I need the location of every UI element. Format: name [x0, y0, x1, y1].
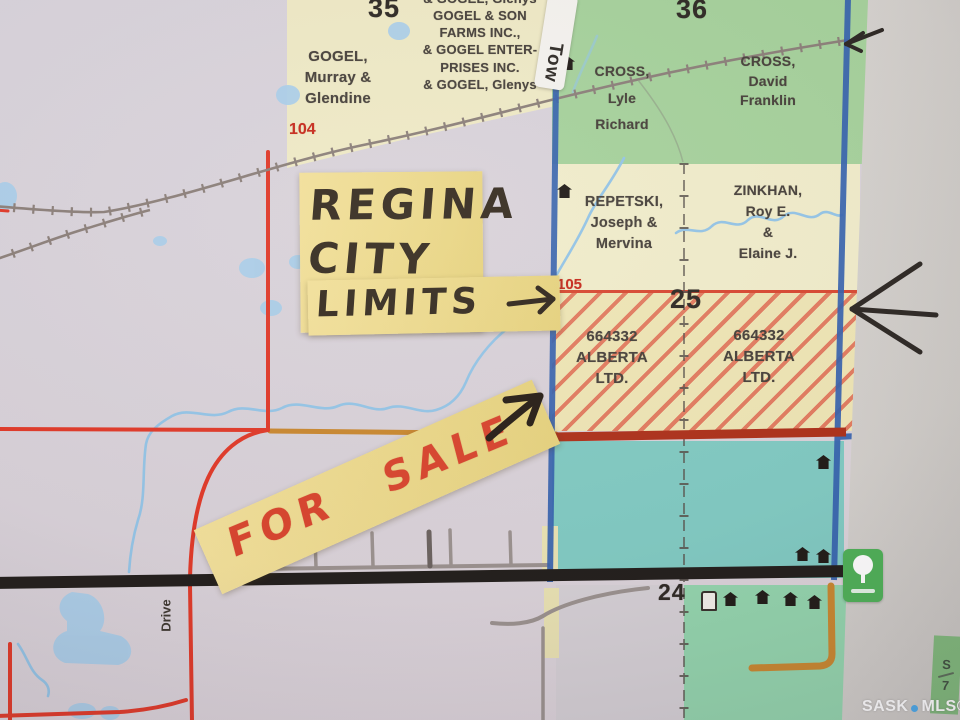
park-campground-icon: [843, 549, 883, 602]
watermark-dot-icon: [911, 705, 918, 712]
watermark-saskmls: SASK MLS®: [862, 698, 960, 716]
owner-gogel-murray-label: GOGEL, Murray & Glendine: [288, 46, 388, 109]
grid-number-105: 105: [557, 276, 582, 293]
watermark-suffix: MLS®: [921, 698, 960, 716]
sticky-note-city-limits-strip: LIMITS: [307, 275, 560, 335]
road-allowance-sliver: [542, 526, 558, 576]
drive-road-label: Drive: [159, 586, 174, 646]
owner-cross-lyle-label: CROSS, Lyle Richard: [578, 58, 666, 138]
section-36-number: 36: [676, 0, 708, 25]
section-35-number: 35: [368, 0, 400, 24]
owner-cross-david-label: CROSS, David Franklin: [722, 52, 814, 111]
owner-gogel-corp-label: & GOGEL, Glenys GOGEL & SON FARMS INC., …: [405, 0, 555, 93]
section-24-number: 24: [658, 579, 686, 606]
grid-number-104: 104: [289, 121, 316, 139]
section-25-number: 25: [670, 284, 702, 315]
note-text-city: CITY: [306, 238, 435, 281]
road-allowance-sliver: [544, 588, 559, 658]
note-text-regina: REGINA: [308, 183, 520, 227]
tree-glyph: [843, 549, 883, 602]
owner-alberta-west-label: 664332 ALBERTA LTD.: [563, 326, 661, 389]
page-edge-bottom-text: 7: [941, 678, 949, 693]
note-text-limits: LIMITS: [315, 284, 483, 324]
watermark-prefix: SASK: [862, 698, 908, 716]
outlined-building-icon: [701, 591, 717, 611]
page-edge-top-text: S: [942, 657, 951, 672]
owner-zinkhan-label: ZINKHAN, Roy E. & Elaine J.: [716, 180, 820, 264]
owner-repetski-label: REPETSKI, Joseph & Mervina: [570, 192, 678, 255]
owner-alberta-east-label: 664332 ALBERTA LTD.: [710, 325, 808, 388]
map-photo: { "map": { "section_numbers": { "nw": "3…: [0, 0, 960, 720]
